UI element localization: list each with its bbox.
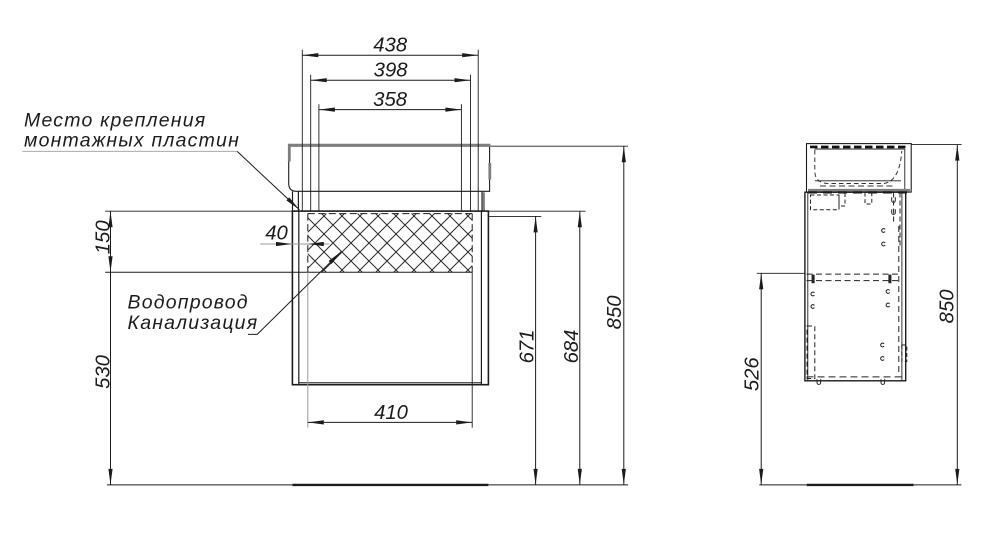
svg-text:684: 684 bbox=[561, 330, 583, 364]
svg-text:438: 438 bbox=[373, 34, 408, 56]
svg-text:Канализация: Канализация bbox=[128, 312, 259, 334]
svg-text:монтажных пластин: монтажных пластин bbox=[24, 130, 240, 152]
svg-text:850: 850 bbox=[937, 289, 959, 324]
svg-text:Водопровод: Водопровод bbox=[128, 292, 249, 314]
svg-text:526: 526 bbox=[741, 357, 763, 392]
svg-text:398: 398 bbox=[374, 60, 409, 82]
svg-text:40: 40 bbox=[265, 223, 288, 245]
svg-text:850: 850 bbox=[604, 295, 626, 330]
svg-text:530: 530 bbox=[92, 354, 114, 389]
svg-text:410: 410 bbox=[374, 402, 409, 424]
svg-text:Место крепления: Место крепления bbox=[24, 109, 206, 131]
svg-text:671: 671 bbox=[517, 330, 539, 364]
svg-text:150: 150 bbox=[92, 220, 114, 255]
svg-text:358: 358 bbox=[373, 89, 408, 111]
